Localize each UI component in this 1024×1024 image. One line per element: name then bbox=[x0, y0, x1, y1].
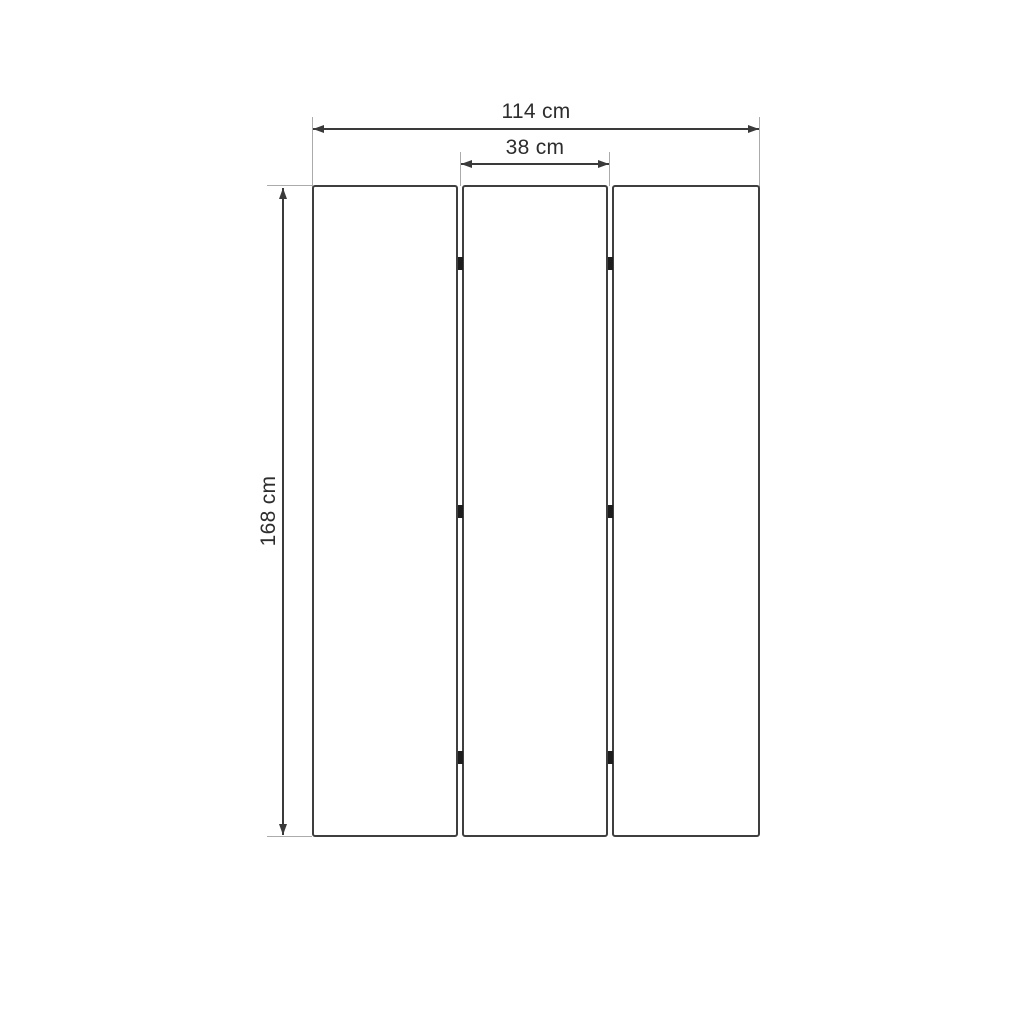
panel-width-label: 38 cm bbox=[460, 136, 610, 160]
hinge-mark-right-middle bbox=[608, 505, 613, 518]
diagram-canvas: 114 cm 38 cm 168 cm bbox=[0, 0, 1024, 1024]
extension-line-height-bottom bbox=[267, 836, 312, 837]
height-label: 168 cm bbox=[257, 449, 281, 573]
total-width-label: 114 cm bbox=[312, 100, 760, 124]
hinge-mark-right-bottom bbox=[608, 751, 613, 764]
hinge-mark-left-middle bbox=[458, 505, 463, 518]
panel-right bbox=[612, 185, 760, 837]
panel-left bbox=[312, 185, 458, 837]
total-width-dimension-line bbox=[313, 128, 759, 130]
panel-width-dimension-line bbox=[461, 163, 609, 165]
hinge-mark-left-bottom bbox=[458, 751, 463, 764]
panel-center bbox=[462, 185, 608, 837]
extension-line-height-top bbox=[267, 185, 312, 186]
extension-line-total-width-right bbox=[759, 117, 760, 187]
height-dimension-line bbox=[282, 188, 284, 835]
hinge-mark-right-top bbox=[608, 257, 613, 270]
hinge-mark-left-top bbox=[458, 257, 463, 270]
